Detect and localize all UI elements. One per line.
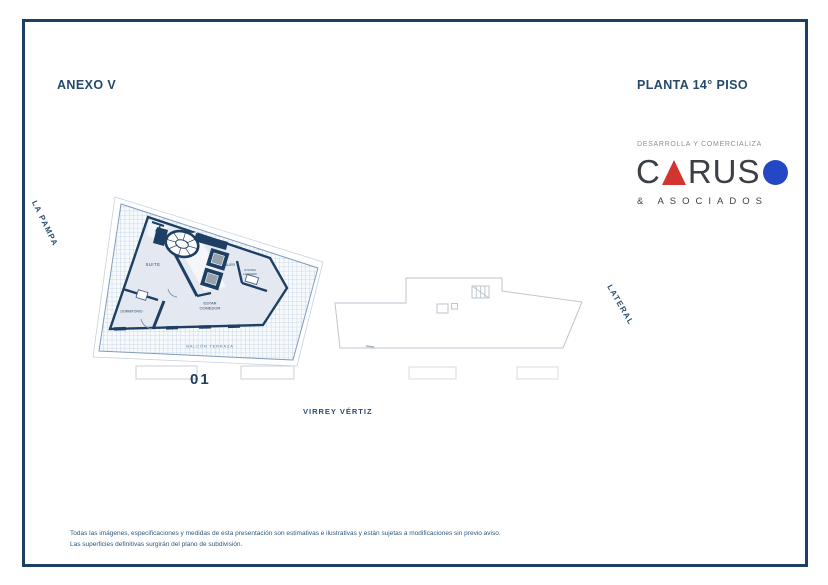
disclaimer-line-2: Las superficies definitivas surgirán del…	[70, 539, 501, 550]
unit-number-label: 01	[190, 371, 211, 388]
disclaimer-text: Todas las imágenes, especificaciones y m…	[70, 528, 501, 550]
disclaimer-line-1: Todas las imágenes, especificaciones y m…	[70, 528, 501, 539]
room-label-cocina: COCINA	[244, 268, 256, 272]
street-label-virrey-vertiz: VIRREY VÉRTIZ	[303, 407, 373, 416]
room-label-palier: PALIER	[223, 263, 235, 267]
room-label-suite: SUITE	[146, 262, 161, 267]
room-label-lavadero: LAVADERO	[243, 272, 257, 276]
room-label-comedor: COMEDOR	[200, 306, 221, 311]
room-label-balcon-terraza: BALCÓN TERRAZA	[186, 344, 233, 349]
floor-plan-drawing: SUITE DORMITORIO ESTAR COMEDOR PALIER CO…	[0, 0, 828, 585]
neighbor-unit-outline	[335, 278, 582, 348]
room-label-dormitorio: DORMITORIO	[121, 310, 143, 314]
